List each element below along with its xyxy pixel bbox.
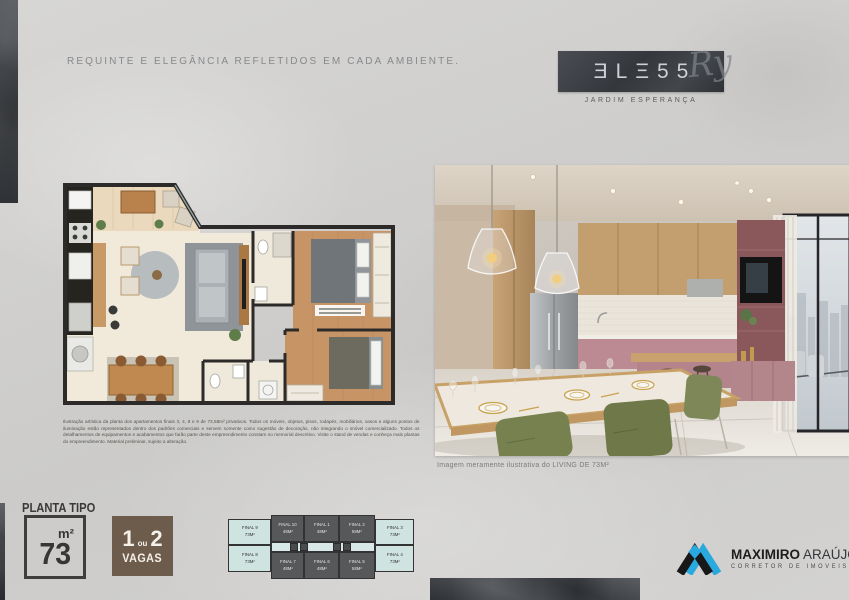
keyplan-unit: FINAL 973M² [228,519,271,545]
planta-tipo-heading: PLANTA TIPO [22,500,95,515]
range-hood [687,279,723,297]
vagas-word: VAGAS [123,551,163,565]
floorplan-disclaimer: Ilustração artística da planta dos apart… [63,419,419,446]
realtor-name: MAXIMIRO ARAÚJO [731,548,849,562]
headline: REQUINTE E ELEGÂNCIA REFLETIDOS EM CADA … [67,56,460,67]
kitchen-peninsula [93,243,106,327]
side-table [152,270,162,280]
bed2-blanket [329,337,369,389]
keyplan-unit: FINAL 373M² [375,519,414,545]
keyplan-unit: FINAL 258M² [339,515,375,542]
washer [259,381,277,399]
tv [242,259,246,309]
elevator-box [300,543,308,551]
cooktop [69,223,91,243]
keyplan-unit: FINAL 148M² [304,515,339,542]
brand-script-monogram: Ry [686,42,734,86]
plant [155,220,164,229]
keyplan-corridor [271,542,375,552]
floorplan-figure [63,183,397,410]
armchair [121,277,139,295]
armchair [121,247,139,265]
master-blanket [311,239,355,303]
dimension-label [315,305,365,316]
floorplan-illustration [63,183,397,410]
pillow [371,341,381,385]
elevator-box [290,543,298,551]
pillow [357,273,369,297]
stool [111,321,120,330]
interior-photo-illustration [435,165,849,456]
island-top [631,353,753,362]
wicker-chair [163,191,179,207]
marble-strip-top-left [0,0,18,203]
realtor-m-icon [676,543,724,575]
vagas-ou-label: ou [138,540,148,548]
brand-subtitle: JARDIM ESPERANÇA [558,97,724,104]
dining-table [109,365,173,395]
keyplan-unit: FINAL 873M² [228,545,271,572]
sink [255,287,267,301]
brand-logo-letters: ƎLΞ55 [586,60,697,84]
realtor-tagline: CORRETOR DE IMÓVEIS [731,564,849,570]
keyplan-unit: FINAL 1048M² [271,515,304,542]
area-value: 73 [39,540,71,568]
sofa-cushion [199,253,225,283]
toilet2 [210,374,220,388]
sink2 [233,365,244,378]
realtor-logo: MAXIMIRO ARAÚJO CORRETOR DE IMÓVEIS [676,543,849,575]
plant [229,329,241,341]
marble-band-bottom [430,578,640,600]
shower [273,233,291,257]
fridge-topview [69,303,91,331]
gold-vase [741,351,746,361]
sofa-cushion [199,287,225,317]
toilet [258,240,268,254]
countertop [578,335,738,339]
keyplan-unit: FINAL 473M² [375,545,414,572]
brochure-page: REQUINTE E ELEGÂNCIA REFLETIDOS EM CADA … [0,0,849,600]
keyplan-unit: FINAL 558M² [339,552,375,579]
marble-sliver-bottom-left [0,503,5,600]
gold-vase [750,347,754,361]
plant [96,220,106,230]
area-box: m² 73 [24,515,86,579]
oven-cabinet [69,253,91,279]
vagas-box: 1 ou 2 VAGAS [112,516,173,576]
vagas-number-2: 2 [150,528,162,550]
pillow [357,243,369,267]
photo-caption: Imagem meramente ilustrativa do LIVING D… [437,462,609,469]
vagas-number-1: 1 [122,528,134,550]
keyplan-unit: FINAL 748M² [271,552,304,579]
terrace-table [121,191,155,213]
keyplan-unit: FINAL 648M² [304,552,339,579]
kitchen-sink [69,191,91,209]
elevator-box [333,543,341,551]
elevator-box [343,543,351,551]
pink-sideboard [731,361,795,401]
building-key-plan: FINAL 973M² FINAL 873M² FINAL 1048M² FIN… [226,511,416,583]
stool [109,306,118,315]
interior-photo [435,165,849,456]
